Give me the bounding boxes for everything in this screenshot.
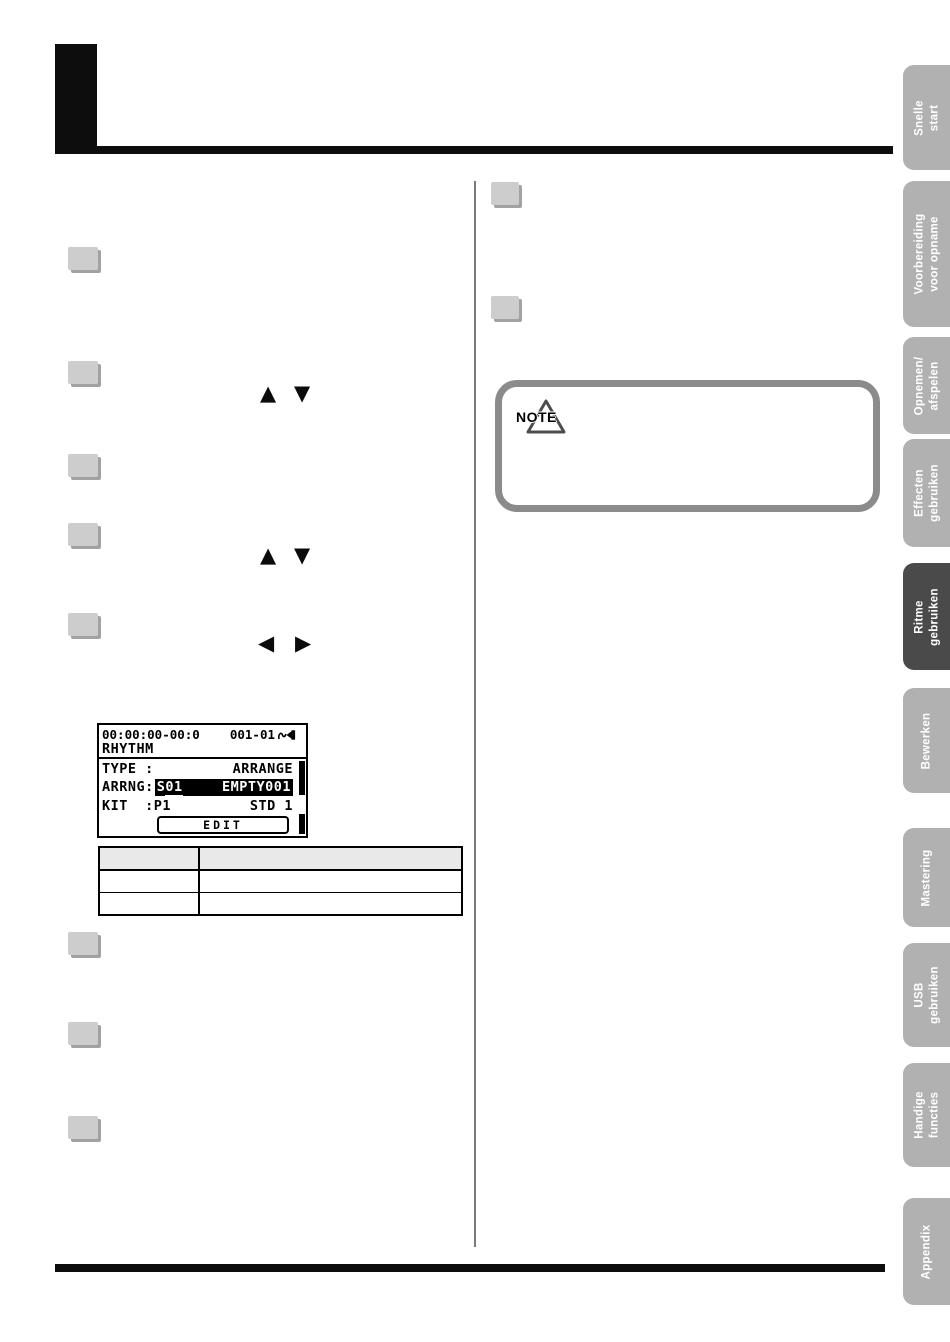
sidebar-tab-appendix[interactable]: Appendix bbox=[903, 1198, 950, 1305]
lcd-page-title: RHYTHM bbox=[102, 741, 154, 757]
sidebar-tab-label: Bewerken bbox=[903, 712, 950, 769]
cursor-right-icon: ▶ bbox=[295, 633, 311, 654]
sidebar-tab-opnemen-afspelen[interactable]: Opnemen/ afspelen bbox=[903, 337, 950, 434]
lcd-kit-left: KIT :P1 bbox=[102, 798, 171, 815]
table-row bbox=[100, 871, 461, 893]
cursor-up-icon: ▲ bbox=[260, 545, 276, 566]
step-marker bbox=[68, 454, 98, 477]
step-marker bbox=[68, 1116, 98, 1139]
table-row bbox=[100, 893, 461, 914]
sidebar-tab-usb-gebruiken[interactable]: USB gebruiken bbox=[903, 943, 950, 1047]
lcd-scrollbar-thumb bbox=[299, 814, 305, 834]
lcd-type-label: TYPE : bbox=[102, 761, 154, 778]
sidebar-tab-label: Appendix bbox=[903, 1224, 950, 1279]
sidebar-tab-snelle-start[interactable]: Snelle start bbox=[903, 65, 950, 170]
sidebar-tab-label: Snelle start bbox=[903, 100, 950, 136]
table-cell bbox=[100, 871, 200, 892]
lcd-type-value: ARRANGE bbox=[233, 761, 293, 778]
lcd-row-kit: KIT :P1 STD 1 bbox=[102, 798, 293, 815]
cursor-down-icon: ▼ bbox=[294, 545, 310, 566]
lcd-time: 00:00:00-00:0 bbox=[102, 727, 200, 742]
step-marker bbox=[68, 247, 98, 270]
manual-page: Snelle start Voorbereiding voor opname O… bbox=[0, 0, 950, 1342]
step-marker bbox=[68, 361, 98, 384]
table-header-row bbox=[100, 848, 461, 871]
lcd-row-arrng: ARRNG: S01 EMPTY001 bbox=[102, 779, 293, 796]
step-marker bbox=[68, 1022, 98, 1045]
sidebar-tab-label: Opnemen/ afspelen bbox=[903, 356, 950, 415]
lcd-arrng-number: S01 bbox=[157, 779, 183, 796]
table-cell bbox=[200, 893, 461, 914]
note-box: NOTE bbox=[495, 380, 880, 512]
note-icon: NOTE bbox=[516, 399, 568, 435]
sidebar-tab-bewerken[interactable]: Bewerken bbox=[903, 688, 950, 793]
sidebar-tab-voorbereiding-voor-opname[interactable]: Voorbereiding voor opname bbox=[903, 181, 950, 327]
note-label: NOTE bbox=[516, 409, 557, 425]
step-marker bbox=[68, 523, 98, 546]
sidebar-tab-label: Effecten gebruiken bbox=[903, 464, 950, 522]
lcd-scrollbar-thumb bbox=[299, 761, 305, 795]
lcd-status-bar: 00:00:00-00:0 001-01 bbox=[102, 727, 296, 742]
step-marker bbox=[68, 613, 98, 636]
sidebar-tab-label: Handige functies bbox=[903, 1091, 950, 1138]
table-header-cell bbox=[100, 848, 200, 869]
step-marker bbox=[68, 932, 98, 955]
sidebar-tab-label: Ritme gebruiken bbox=[903, 588, 950, 646]
lcd-kit-name: STD 1 bbox=[250, 798, 293, 815]
cursor-down-icon: ▼ bbox=[294, 383, 310, 404]
lcd-edit-softbutton: EDIT bbox=[157, 816, 289, 834]
cursor-up-icon: ▲ bbox=[260, 383, 276, 404]
step-marker bbox=[491, 296, 519, 319]
sidebar-tab-ritme-gebruiken[interactable]: Ritme gebruiken bbox=[903, 563, 950, 670]
sidebar-tab-effecten-gebruiken[interactable]: Effecten gebruiken bbox=[903, 439, 950, 547]
sidebar-tab-handige-functies[interactable]: Handige functies bbox=[903, 1063, 950, 1167]
table-cell bbox=[100, 893, 200, 914]
sidebar-tab-label: Voorbereiding voor opname bbox=[903, 214, 950, 295]
table-header-cell bbox=[200, 848, 461, 869]
lcd-title-rule bbox=[99, 757, 306, 759]
sidebar-tab-mastering[interactable]: Mastering bbox=[903, 828, 950, 927]
ac-adapter-icon bbox=[277, 729, 296, 741]
lcd-row-type: TYPE : ARRANGE bbox=[102, 761, 293, 778]
parameter-table bbox=[98, 846, 463, 916]
lcd-arrng-name: EMPTY001 bbox=[222, 779, 291, 796]
column-divider bbox=[474, 181, 476, 1247]
lcd-screen: 00:00:00-00:0 001-01 RHYTHM TYPE : ARRAN… bbox=[97, 723, 308, 838]
lcd-measure: 001-01 bbox=[230, 727, 275, 742]
footer-rule bbox=[55, 1264, 885, 1272]
sidebar-tab-label: Mastering bbox=[903, 849, 950, 906]
lcd-arrng-label: ARRNG: bbox=[102, 779, 154, 796]
lcd-arrng-selected-value: S01 EMPTY001 bbox=[155, 779, 293, 796]
chapter-number-block bbox=[55, 44, 97, 154]
cursor-left-icon: ◀ bbox=[258, 633, 274, 654]
table-cell bbox=[200, 871, 461, 892]
header-rule bbox=[55, 146, 893, 154]
sidebar-tab-label: USB gebruiken bbox=[903, 966, 950, 1024]
step-marker bbox=[491, 182, 519, 205]
